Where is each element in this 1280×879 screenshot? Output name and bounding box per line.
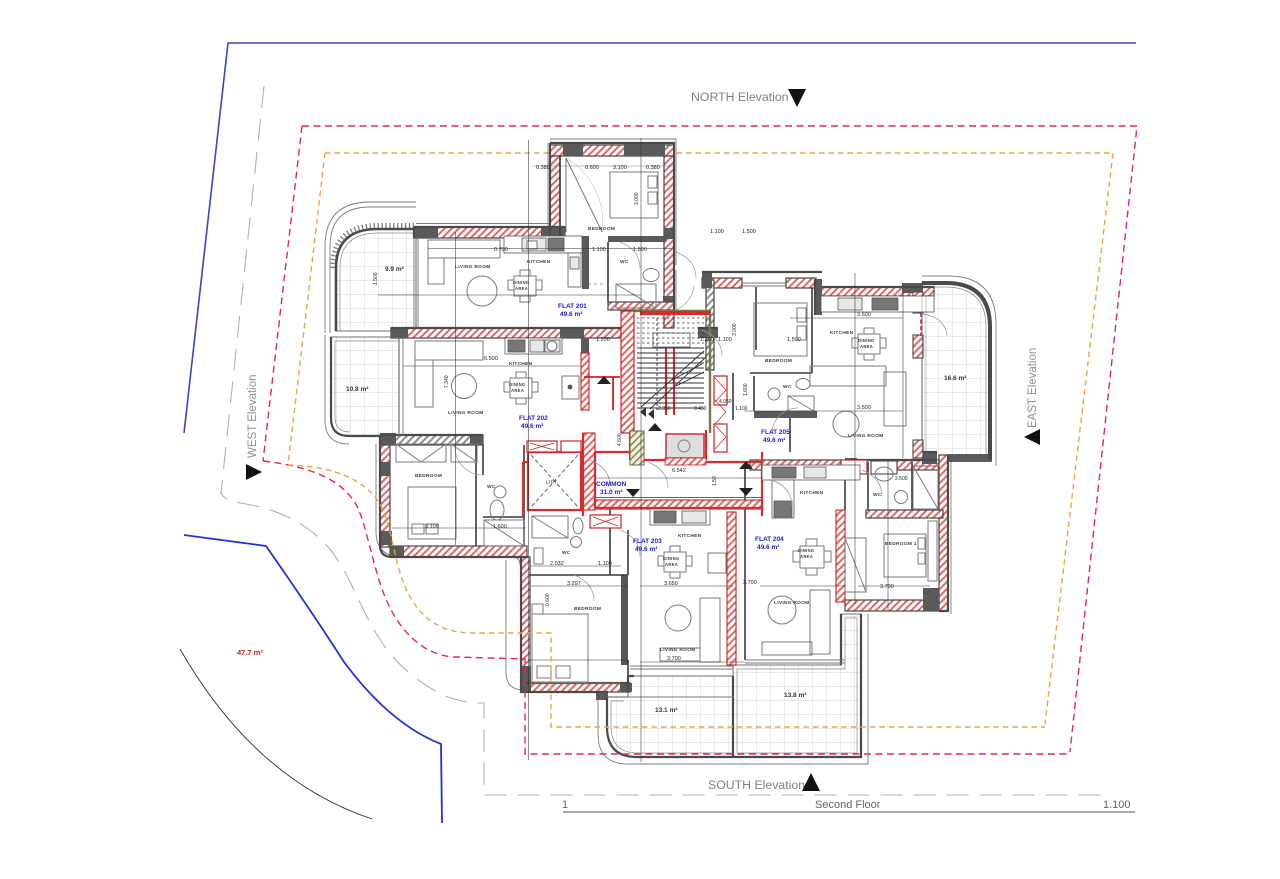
svg-text:NORTH Elevation: NORTH Elevation — [691, 90, 789, 104]
svg-text:COMMON: COMMON — [596, 481, 627, 488]
svg-text:6.542: 6.542 — [672, 468, 686, 474]
svg-text:0.600: 0.600 — [585, 165, 599, 171]
svg-text:LIFT: LIFT — [546, 480, 558, 486]
svg-text:SOUTH Elevation: SOUTH Elevation — [708, 778, 805, 792]
svg-text:AREA: AREA — [511, 388, 524, 393]
svg-text:WC: WC — [873, 492, 882, 498]
svg-text:FLAT 202: FLAT 202 — [519, 415, 548, 422]
svg-text:3.297: 3.297 — [567, 581, 581, 587]
svg-text:31.0 m²: 31.0 m² — [600, 489, 623, 496]
svg-text:1.100: 1.100 — [1103, 799, 1131, 811]
svg-text:WC: WC — [783, 384, 792, 390]
svg-text:AREA: AREA — [860, 344, 873, 349]
svg-text:7.340: 7.340 — [444, 375, 450, 388]
svg-text:BEDROOM: BEDROOM — [415, 473, 442, 479]
svg-text:0.380: 0.380 — [536, 165, 550, 171]
svg-text:1.600: 1.600 — [493, 524, 507, 530]
svg-text:1.600: 1.600 — [743, 383, 749, 396]
svg-text:1.200: 1.200 — [596, 337, 610, 343]
svg-text:10.8 m²: 10.8 m² — [346, 386, 369, 393]
svg-text:1.50: 1.50 — [712, 476, 718, 486]
svg-text:DINING: DINING — [513, 280, 529, 285]
svg-text:KITCHEN: KITCHEN — [527, 259, 551, 265]
svg-text:Second Floor: Second Floor — [815, 799, 881, 811]
svg-text:WC: WC — [620, 259, 629, 265]
svg-text:LIVING ROOM: LIVING ROOM — [774, 600, 810, 606]
svg-text:LIVING ROOM: LIVING ROOM — [848, 433, 884, 439]
svg-text:49.6 m²: 49.6 m² — [635, 546, 658, 553]
svg-text:AREA: AREA — [665, 562, 678, 567]
svg-text:BEDROOM: BEDROOM — [588, 226, 615, 232]
svg-text:3.500: 3.500 — [857, 405, 871, 411]
svg-text:WEST Elevation: WEST Elevation — [247, 374, 259, 458]
svg-text:DINING: DINING — [509, 382, 525, 387]
svg-text:LIVING ROOM: LIVING ROOM — [660, 647, 696, 653]
svg-text:KITCHEN: KITCHEN — [509, 361, 533, 367]
svg-text:1.100: 1.100 — [598, 561, 612, 567]
svg-text:AREA: AREA — [800, 554, 813, 559]
svg-text:49.6 m²: 49.6 m² — [521, 423, 544, 430]
svg-text:1.100: 1.100 — [592, 247, 606, 253]
svg-text:KITCHEN: KITCHEN — [678, 533, 702, 539]
svg-text:3.650: 3.650 — [664, 581, 678, 587]
svg-text:1.100: 1.100 — [710, 229, 724, 235]
svg-text:9.9 m²: 9.9 m² — [385, 266, 405, 273]
svg-text:1.500: 1.500 — [633, 247, 647, 253]
svg-text:13.1 m²: 13.1 m² — [655, 707, 678, 714]
svg-text:49.6 m²: 49.6 m² — [560, 311, 583, 318]
svg-text:3.700: 3.700 — [743, 580, 757, 586]
svg-text:3.000: 3.000 — [732, 323, 738, 336]
svg-text:49.6 m²: 49.6 m² — [757, 544, 780, 551]
svg-text:1.100: 1.100 — [735, 406, 748, 412]
svg-text:DINING: DINING — [798, 548, 814, 553]
svg-text:0.380: 0.380 — [646, 165, 660, 171]
svg-text:16.6 m²: 16.6 m² — [944, 375, 967, 382]
svg-text:1: 1 — [562, 799, 568, 811]
svg-text:2.500: 2.500 — [895, 476, 908, 482]
svg-text:BEDROOM: BEDROOM — [574, 606, 601, 612]
svg-text:3.100: 3.100 — [613, 165, 627, 171]
svg-text:1.500: 1.500 — [742, 229, 756, 235]
svg-text:BEDROOM 1: BEDROOM 1 — [885, 541, 917, 547]
svg-text:FLAT 201: FLAT 201 — [558, 303, 587, 310]
svg-text:FLAT 203: FLAT 203 — [633, 538, 662, 545]
svg-text:3.100: 3.100 — [425, 524, 439, 530]
svg-text:1.100: 1.100 — [718, 337, 732, 343]
svg-text:3.000: 3.000 — [634, 192, 640, 205]
svg-text:2.350: 2.350 — [658, 406, 671, 412]
svg-text:DINING: DINING — [858, 338, 874, 343]
svg-text:3.700: 3.700 — [880, 584, 894, 590]
svg-text:EAST Elevation: EAST Elevation — [1027, 348, 1039, 428]
svg-text:KITCHEN: KITCHEN — [800, 490, 824, 496]
svg-text:WC: WC — [487, 484, 496, 490]
svg-text:1.200: 1.200 — [700, 337, 714, 343]
svg-text:4.050: 4.050 — [719, 399, 732, 405]
svg-text:LIVING ROOM: LIVING ROOM — [448, 410, 484, 416]
svg-text:KITCHEN: KITCHEN — [830, 330, 854, 336]
svg-text:1.500: 1.500 — [373, 272, 379, 285]
svg-text:47.7 m²: 47.7 m² — [237, 648, 263, 657]
svg-text:4.600: 4.600 — [617, 433, 623, 446]
svg-text:6.500: 6.500 — [484, 356, 498, 362]
svg-text:WC: WC — [562, 550, 571, 556]
svg-text:FLAT 205: FLAT 205 — [761, 429, 790, 436]
svg-text:0.600: 0.600 — [545, 593, 551, 606]
svg-text:BEDROOM: BEDROOM — [765, 358, 792, 364]
svg-text:1.500: 1.500 — [787, 337, 801, 343]
svg-text:3.500: 3.500 — [857, 312, 871, 318]
svg-text:0.700: 0.700 — [494, 247, 508, 253]
svg-text:DINING: DINING — [663, 556, 679, 561]
svg-text:49.6 m²: 49.6 m² — [763, 437, 786, 444]
svg-text:0.450: 0.450 — [694, 406, 707, 412]
svg-text:AREA: AREA — [515, 286, 528, 291]
svg-text:LIVING ROOM: LIVING ROOM — [455, 264, 491, 270]
svg-text:3.700: 3.700 — [667, 656, 681, 662]
svg-text:13.8 m²: 13.8 m² — [784, 692, 807, 699]
svg-text:2.032: 2.032 — [550, 561, 564, 567]
svg-text:FLAT 204: FLAT 204 — [755, 536, 784, 543]
